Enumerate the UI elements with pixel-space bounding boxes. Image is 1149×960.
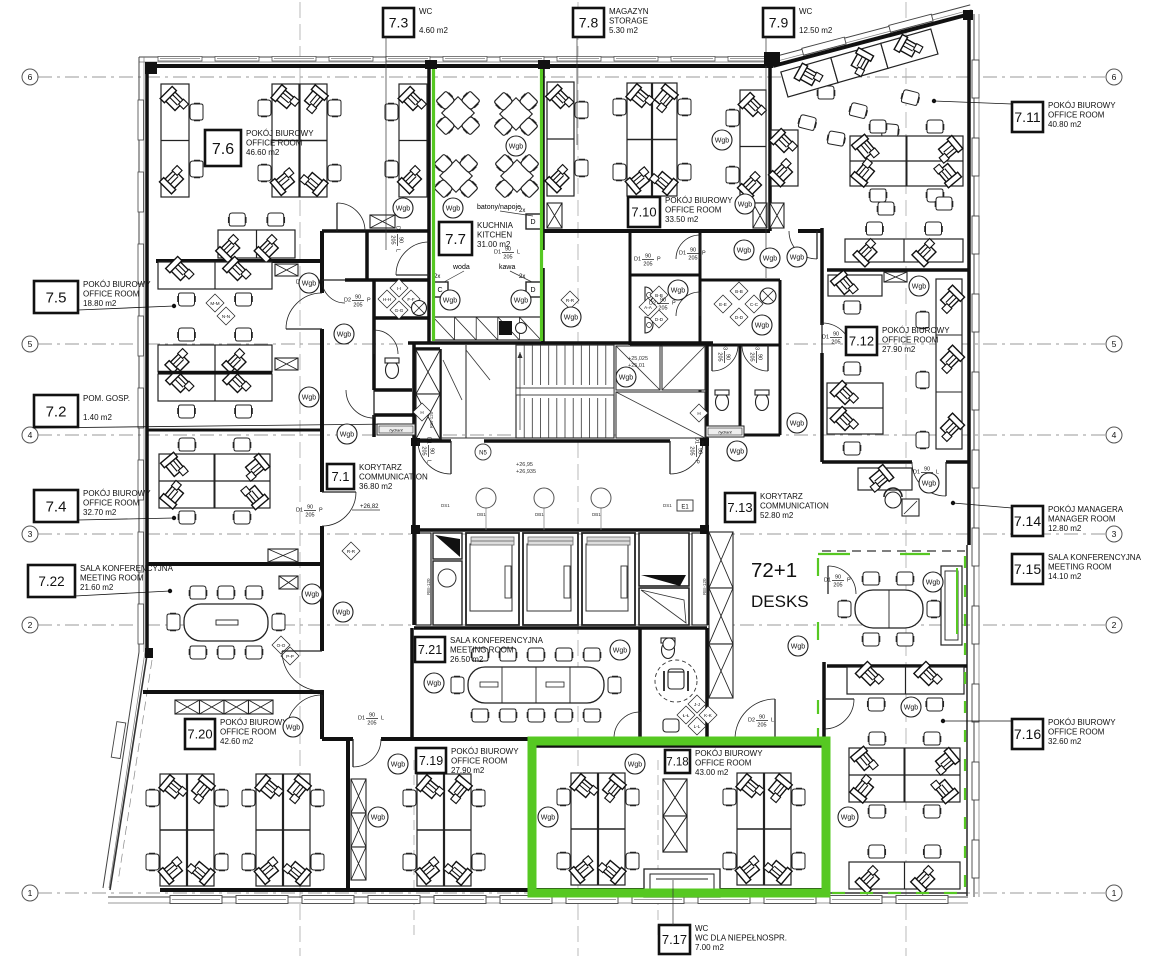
svg-text:I-I: I-I <box>397 286 401 291</box>
svg-text:205: 205 <box>749 352 755 361</box>
svg-text:7.7: 7.7 <box>445 231 466 248</box>
svg-text:F-F: F-F <box>407 297 414 302</box>
svg-text:90: 90 <box>759 715 765 721</box>
svg-text:7.11: 7.11 <box>1014 109 1040 125</box>
svg-text:kawa: kawa <box>499 264 515 271</box>
svg-text:90: 90 <box>355 295 361 301</box>
svg-text:72+1: 72+1 <box>751 559 797 582</box>
svg-text:REI-120: REI-120 <box>426 578 431 595</box>
svg-text:DB1: DB1 <box>477 512 486 517</box>
svg-text:Wgb: Wgb <box>841 815 856 822</box>
svg-text:90: 90 <box>833 332 839 338</box>
svg-text:Wgb: Wgb <box>755 323 770 330</box>
svg-text:205: 205 <box>353 303 362 309</box>
svg-text:Wgb: Wgb <box>613 648 628 655</box>
svg-text:P: P <box>367 298 371 304</box>
svg-text:7.2: 7.2 <box>46 403 67 420</box>
svg-text:DS1: DS1 <box>663 503 672 508</box>
svg-text:J-J: J-J <box>694 702 700 707</box>
svg-text:52.80 m2: 52.80 m2 <box>760 511 794 520</box>
svg-text:21.60 m2: 21.60 m2 <box>80 583 114 592</box>
svg-text:DESKS: DESKS <box>751 592 809 611</box>
svg-text:OFFICE ROOM: OFFICE ROOM <box>83 499 140 508</box>
svg-text:Wgb: Wgb <box>790 255 805 262</box>
svg-text:Wgb: Wgb <box>619 375 634 382</box>
svg-text:7.17: 7.17 <box>662 932 687 947</box>
svg-text:14.10 m2: 14.10 m2 <box>1048 572 1082 581</box>
svg-text:MAGAZYN: MAGAZYN <box>609 7 649 16</box>
svg-text:OFFICE ROOM: OFFICE ROOM <box>83 290 140 299</box>
svg-text:31.00 m2: 31.00 m2 <box>477 240 511 249</box>
svg-text:H: H <box>697 411 700 416</box>
svg-text:P: P <box>702 251 706 257</box>
svg-text:L: L <box>395 249 401 252</box>
svg-text:STORAGE: STORAGE <box>609 17 648 26</box>
svg-text:27.90 m2: 27.90 m2 <box>882 345 916 354</box>
svg-text:205: 205 <box>717 352 723 361</box>
svg-text:7.1: 7.1 <box>331 469 349 484</box>
svg-text:90: 90 <box>369 713 375 719</box>
svg-text:R-R: R-R <box>347 549 356 554</box>
svg-text:Wgb: Wgb <box>336 610 351 617</box>
svg-text:27.90 m2: 27.90 m2 <box>451 766 485 775</box>
svg-text:POKÓJ BIUROWY: POKÓJ BIUROWY <box>246 129 314 138</box>
svg-text:POKÓJ MANAGERA: POKÓJ MANAGERA <box>1048 505 1124 514</box>
svg-text:OFFICE ROOM: OFFICE ROOM <box>665 206 722 215</box>
svg-text:+26,82: +26,82 <box>360 504 379 510</box>
svg-text:MEETING ROOM: MEETING ROOM <box>450 646 514 655</box>
svg-text:POKÓJ BIUROWY: POKÓJ BIUROWY <box>83 280 151 289</box>
svg-text:L: L <box>426 460 432 463</box>
svg-text:Wgb: Wgb <box>671 288 686 295</box>
svg-text:4: 4 <box>28 430 33 440</box>
svg-text:D1: D1 <box>679 251 686 257</box>
svg-text:7.16: 7.16 <box>1014 726 1041 742</box>
svg-text:POKÓJ BIUROWY: POKÓJ BIUROWY <box>665 196 733 205</box>
svg-text:E-E: E-E <box>719 302 727 307</box>
svg-text:32.70 m2: 32.70 m2 <box>83 508 117 517</box>
svg-text:Wgb: Wgb <box>737 248 752 255</box>
svg-text:Wgb: Wgb <box>628 762 643 769</box>
svg-text:D2: D2 <box>748 718 755 724</box>
svg-text:Wgb: Wgb <box>715 138 730 145</box>
svg-text:POKÓJ BIUROWY: POKÓJ BIUROWY <box>882 326 950 335</box>
svg-text:M-M: M-M <box>210 301 219 306</box>
svg-text:OFFICE ROOM: OFFICE ROOM <box>246 139 303 148</box>
svg-text:90: 90 <box>429 448 435 454</box>
svg-text:POKÓJ BIUROWY: POKÓJ BIUROWY <box>83 489 151 498</box>
svg-text:7.14: 7.14 <box>1014 513 1041 529</box>
svg-text:205: 205 <box>503 255 512 261</box>
svg-text:43.00 m2: 43.00 m2 <box>695 768 729 777</box>
svg-text:7.18: 7.18 <box>666 757 688 769</box>
svg-text:MEETING ROOM: MEETING ROOM <box>80 574 144 583</box>
svg-text:O-O: O-O <box>277 643 286 648</box>
svg-text:90: 90 <box>757 354 763 360</box>
svg-text:7.21: 7.21 <box>418 643 442 657</box>
svg-text:33.50 m2: 33.50 m2 <box>665 215 699 224</box>
svg-text:90: 90 <box>307 505 313 511</box>
svg-text:4: 4 <box>1112 430 1117 440</box>
svg-text:90: 90 <box>725 354 731 360</box>
svg-text:7.13: 7.13 <box>727 500 752 515</box>
svg-text:P: P <box>657 257 661 263</box>
svg-text:Wgb: Wgb <box>396 206 411 213</box>
svg-text:Wgb: Wgb <box>791 644 806 651</box>
svg-text:Wgb: Wgb <box>305 592 320 599</box>
svg-text:7.00 m2: 7.00 m2 <box>695 943 724 952</box>
svg-text:Wgb: Wgb <box>926 580 941 587</box>
svg-text:Wgb: Wgb <box>738 202 753 209</box>
svg-text:P: P <box>694 460 700 464</box>
svg-text:D3: D3 <box>722 343 728 350</box>
svg-text:205: 205 <box>658 306 667 312</box>
svg-text:Wgb: Wgb <box>391 762 406 769</box>
svg-text:36.80 m2: 36.80 m2 <box>359 482 393 491</box>
svg-text:205: 205 <box>833 583 842 589</box>
svg-text:D1: D1 <box>634 257 641 263</box>
svg-text:7.20: 7.20 <box>187 727 212 742</box>
svg-text:32.60 m2: 32.60 m2 <box>1048 737 1082 746</box>
svg-text:Wgb: Wgb <box>763 256 778 263</box>
svg-text:D: D <box>530 287 535 294</box>
svg-text:D1: D1 <box>395 226 401 233</box>
svg-text:DS1: DS1 <box>441 503 450 508</box>
svg-text:Wgb: Wgb <box>286 725 301 732</box>
svg-text:P: P <box>672 301 676 307</box>
svg-text:46.60 m2: 46.60 m2 <box>246 148 280 157</box>
svg-text:R-R: R-R <box>566 298 575 303</box>
svg-text:OFFICE ROOM: OFFICE ROOM <box>220 728 277 737</box>
svg-text:6: 6 <box>28 72 33 82</box>
svg-text:Wgb: Wgb <box>912 284 927 291</box>
svg-text:1: 1 <box>1112 888 1117 898</box>
svg-text:SALA KONFERENCYJNA: SALA KONFERENCYJNA <box>450 636 544 645</box>
svg-text:DB1: DB1 <box>535 512 544 517</box>
svg-text:D1: D1 <box>358 716 365 722</box>
svg-text:C: C <box>437 287 442 294</box>
svg-text:Wgb: Wgb <box>514 298 529 305</box>
svg-text:Wgb: Wgb <box>371 815 386 822</box>
svg-text:L: L <box>517 250 520 256</box>
svg-text:POKÓJ BIUROWY: POKÓJ BIUROWY <box>220 718 288 727</box>
svg-text:90: 90 <box>645 254 651 260</box>
svg-text:SALA KONFERENCYJNA: SALA KONFERENCYJNA <box>1048 553 1142 562</box>
svg-text:OFFICE ROOM: OFFICE ROOM <box>1048 111 1105 120</box>
svg-text:6: 6 <box>1112 72 1117 82</box>
svg-text:205: 205 <box>367 721 376 727</box>
svg-text:7.5: 7.5 <box>46 289 67 306</box>
svg-text:205: 205 <box>421 446 427 455</box>
svg-text:26.50 m2: 26.50 m2 <box>450 655 484 664</box>
svg-text:+25,025: +25,025 <box>628 356 648 362</box>
svg-text:POKÓJ BIUROWY: POKÓJ BIUROWY <box>1048 718 1116 727</box>
svg-text:7.6: 7.6 <box>212 141 234 158</box>
svg-text:D1: D1 <box>913 470 920 476</box>
svg-text:Wgb: Wgb <box>446 206 461 213</box>
svg-text:N-N: N-N <box>222 314 230 319</box>
svg-text:WC: WC <box>799 7 813 16</box>
svg-text:1: 1 <box>28 888 33 898</box>
svg-text:D: D <box>530 219 535 226</box>
svg-text:18.80 m2: 18.80 m2 <box>83 299 117 308</box>
svg-text:D1: D1 <box>694 437 700 444</box>
svg-text:205: 205 <box>688 256 697 262</box>
svg-text:Wgb: Wgb <box>541 815 556 822</box>
svg-text:Wgb: Wgb <box>790 421 805 428</box>
svg-text:7.8: 7.8 <box>579 15 599 31</box>
svg-text:MEETING ROOM: MEETING ROOM <box>1048 563 1112 572</box>
svg-text:+26,935: +26,935 <box>516 469 536 475</box>
svg-text:1.40 m2: 1.40 m2 <box>83 413 112 422</box>
svg-text:205: 205 <box>831 340 840 346</box>
svg-text:batony/napoje: batony/napoje <box>477 204 521 211</box>
svg-text:hydrant: hydrant <box>389 428 403 433</box>
svg-text:2: 2 <box>28 620 33 630</box>
svg-text:Wgb: Wgb <box>509 144 524 151</box>
svg-text:D1: D1 <box>426 437 432 444</box>
svg-text:POM. GOSP.: POM. GOSP. <box>83 394 130 403</box>
svg-text:DB1: DB1 <box>592 512 601 517</box>
svg-text:H-H: H-H <box>383 297 391 302</box>
svg-text:woda: woda <box>452 264 470 271</box>
svg-text:D3: D3 <box>754 343 760 350</box>
svg-text:3: 3 <box>1112 529 1117 539</box>
svg-text:7.15: 7.15 <box>1014 561 1041 577</box>
svg-text:D2: D2 <box>344 298 351 304</box>
svg-text:Wgb: Wgb <box>904 705 919 712</box>
svg-text:5: 5 <box>28 339 33 349</box>
svg-text:7.22: 7.22 <box>38 574 64 589</box>
svg-text:WC DLA NIEPEŁNOSPR.: WC DLA NIEPEŁNOSPR. <box>695 934 787 943</box>
svg-text:KORYTARZ: KORYTARZ <box>760 492 803 501</box>
svg-text:Wgb: Wgb <box>302 281 317 288</box>
svg-text:12.80 m2: 12.80 m2 <box>1048 524 1082 533</box>
svg-text:4.60 m2: 4.60 m2 <box>419 26 448 35</box>
svg-text:12.50 m2: 12.50 m2 <box>799 26 833 35</box>
svg-text:OFFICE ROOM: OFFICE ROOM <box>1048 728 1105 737</box>
svg-text:5.30 m2: 5.30 m2 <box>609 26 638 35</box>
svg-text:7.12: 7.12 <box>849 334 874 349</box>
svg-text:G-G: G-G <box>395 308 404 313</box>
svg-text:D2: D2 <box>649 301 656 307</box>
svg-text:205: 205 <box>390 235 396 244</box>
svg-text:7.3: 7.3 <box>389 15 409 31</box>
svg-text:205: 205 <box>643 262 652 268</box>
svg-text:90: 90 <box>660 298 666 304</box>
svg-text:D1: D1 <box>296 508 303 514</box>
svg-text:Wgb: Wgb <box>443 298 458 305</box>
svg-text:H: H <box>420 410 423 415</box>
svg-text:90: 90 <box>924 467 930 473</box>
svg-text:WC: WC <box>419 7 433 16</box>
svg-text:7.9: 7.9 <box>769 15 789 31</box>
svg-text:205: 205 <box>757 723 766 729</box>
svg-text:OFFICE ROOM: OFFICE ROOM <box>451 757 508 766</box>
svg-text:7.19: 7.19 <box>419 754 443 768</box>
svg-text:P-P: P-P <box>286 654 294 659</box>
svg-text:40.80 m2: 40.80 m2 <box>1048 120 1082 129</box>
svg-text:L: L <box>771 718 774 724</box>
svg-text:POKÓJ BIUROWY: POKÓJ BIUROWY <box>1048 101 1116 110</box>
svg-text:Wgb: Wgb <box>427 681 442 688</box>
svg-text:REI-120: REI-120 <box>702 578 707 595</box>
svg-text:MANAGER ROOM: MANAGER ROOM <box>1048 515 1116 524</box>
svg-text:COMMUNICATION: COMMUNICATION <box>359 473 428 482</box>
svg-text:Wgb: Wgb <box>730 449 745 456</box>
svg-text:Wgb: Wgb <box>340 432 355 439</box>
svg-text:90: 90 <box>697 448 703 454</box>
svg-text:D-D: D-D <box>655 317 664 322</box>
svg-text:5: 5 <box>1112 339 1117 349</box>
svg-text:D1: D1 <box>494 250 501 256</box>
svg-text:N5: N5 <box>479 451 487 457</box>
svg-text:Wgb: Wgb <box>922 481 937 488</box>
svg-text:2: 2 <box>1112 620 1117 630</box>
svg-text:KITCHEN: KITCHEN <box>477 231 512 240</box>
svg-text:P: P <box>847 578 851 584</box>
svg-text:Wgb: Wgb <box>337 332 352 339</box>
svg-text:KORYTARZ: KORYTARZ <box>359 463 402 472</box>
svg-text:Wgb: Wgb <box>302 395 317 402</box>
svg-text:90: 90 <box>690 248 696 254</box>
svg-text:205: 205 <box>305 513 314 519</box>
svg-text:90: 90 <box>835 575 841 581</box>
svg-text:C-C: C-C <box>750 302 759 307</box>
svg-text:WC: WC <box>695 924 709 933</box>
svg-text:Ł-Ł: Ł-Ł <box>683 713 690 718</box>
svg-text:COMMUNICATION: COMMUNICATION <box>760 502 829 511</box>
svg-text:7.10: 7.10 <box>631 205 656 220</box>
svg-text:KUCHNIA: KUCHNIA <box>477 221 514 230</box>
svg-text:P: P <box>319 508 323 514</box>
svg-text:Wgb: Wgb <box>564 315 579 322</box>
svg-text:+26,95: +26,95 <box>516 462 533 468</box>
svg-text:L: L <box>381 716 384 722</box>
svg-text:D1: D1 <box>824 578 831 584</box>
svg-text:hydrant: hydrant <box>718 430 732 435</box>
svg-text:E1: E1 <box>681 505 689 511</box>
svg-text:OFFICE ROOM: OFFICE ROOM <box>882 336 939 345</box>
svg-text:REI-120: REI-120 <box>429 411 434 428</box>
svg-text:B-B: B-B <box>735 289 743 294</box>
svg-text:3: 3 <box>28 529 33 539</box>
svg-text:POKÓJ BIUROWY: POKÓJ BIUROWY <box>695 749 763 758</box>
svg-text:OFFICE ROOM: OFFICE ROOM <box>695 759 752 768</box>
svg-text:POKÓJ BIUROWY: POKÓJ BIUROWY <box>451 747 519 756</box>
svg-text:L-L: L-L <box>694 724 701 729</box>
svg-text:D1: D1 <box>822 335 829 341</box>
svg-text:L: L <box>936 470 939 476</box>
svg-text:7.4: 7.4 <box>46 498 67 515</box>
svg-text:205: 205 <box>689 446 695 455</box>
svg-text:SALA KONFERENCYJNA: SALA KONFERENCYJNA <box>80 564 174 573</box>
svg-text:42.60 m2: 42.60 m2 <box>220 737 254 746</box>
svg-text:90: 90 <box>398 237 404 243</box>
svg-text:K-K: K-K <box>704 713 713 718</box>
svg-text:D-D: D-D <box>735 315 744 320</box>
